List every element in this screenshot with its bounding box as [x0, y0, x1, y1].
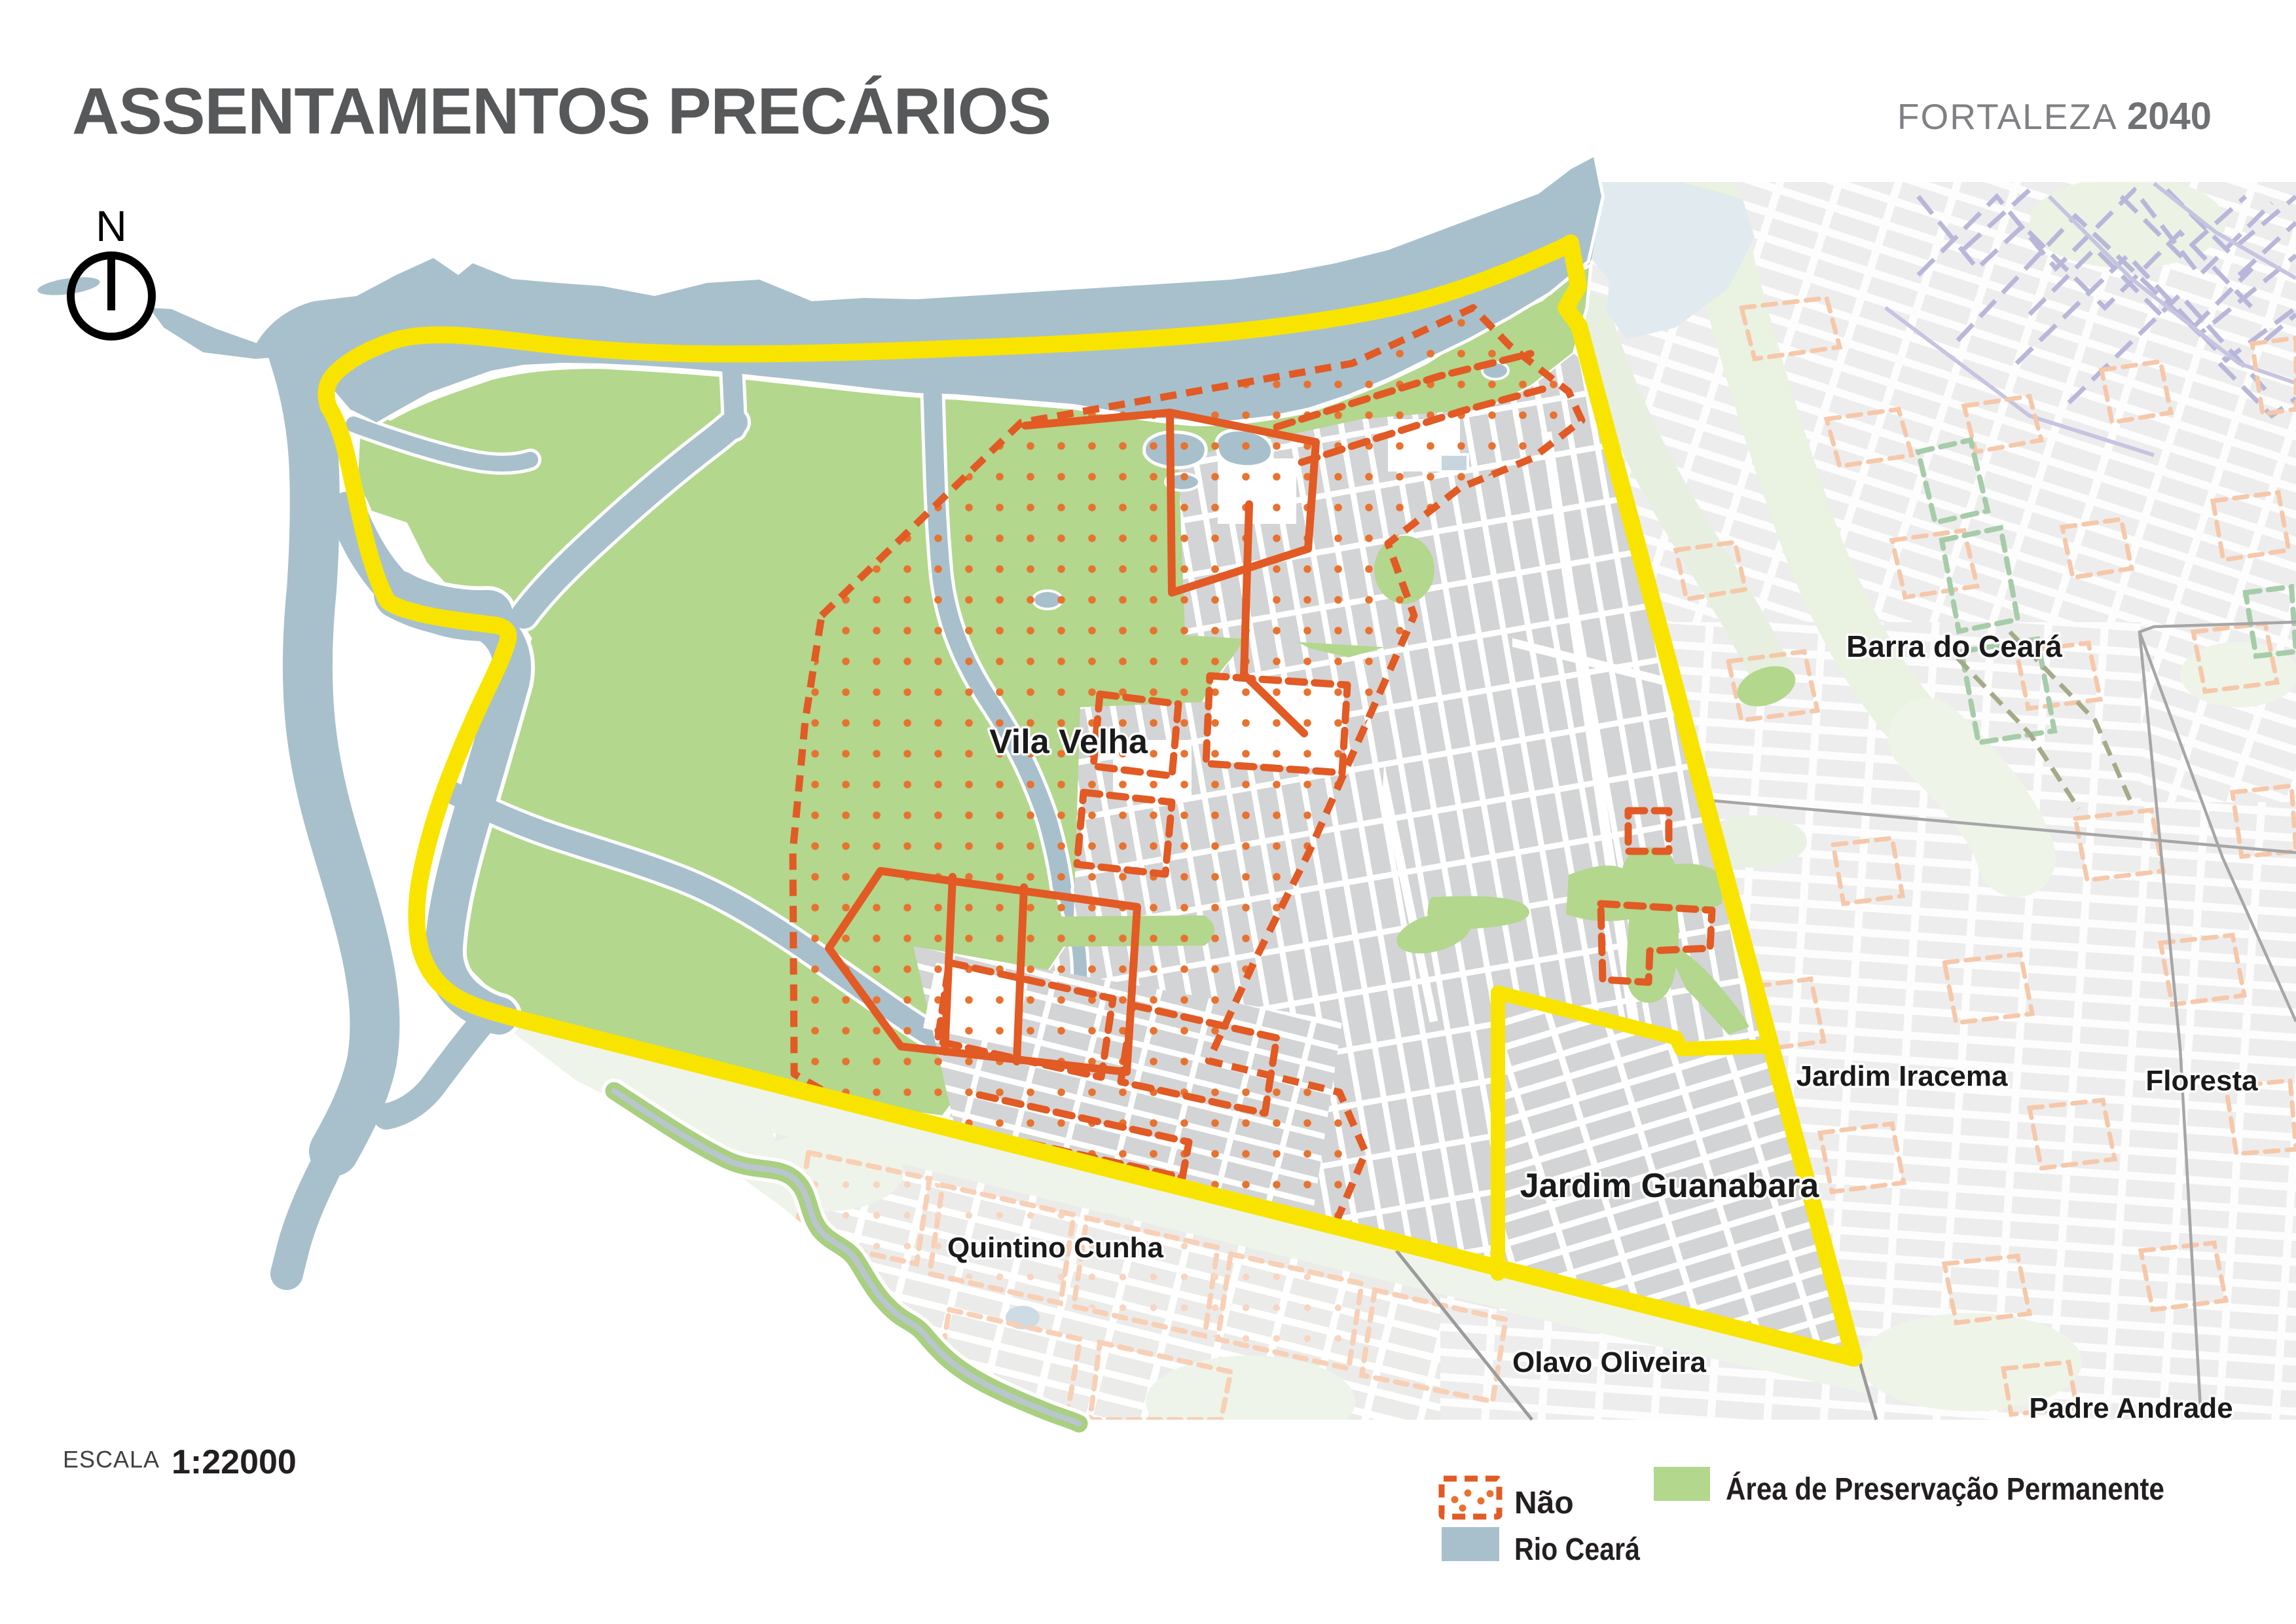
svg-text:ESCALA: ESCALA — [63, 1446, 160, 1473]
svg-text:Floresta: Floresta — [2145, 1065, 2258, 1097]
svg-text:1:22000: 1:22000 — [172, 1443, 297, 1481]
svg-text:Área de Preservação Permanente: Área de Preservação Permanente — [1726, 1471, 2164, 1507]
svg-text:Quintino Cunha: Quintino Cunha — [947, 1232, 1163, 1264]
svg-text:ASSENTAMENTOS PRECÁRIOS: ASSENTAMENTOS PRECÁRIOS — [72, 75, 1051, 148]
svg-text:Vila Velha: Vila Velha — [989, 723, 1148, 761]
svg-text:Padre Andrade: Padre Andrade — [2029, 1392, 2232, 1424]
svg-text:Não: Não — [1514, 1486, 1574, 1521]
svg-text:Jardim Iracema: Jardim Iracema — [1796, 1060, 2008, 1092]
svg-text:Rio Ceará: Rio Ceará — [1514, 1532, 1640, 1567]
svg-text:N: N — [96, 202, 127, 250]
svg-text:Barra do Ceará: Barra do Ceará — [1846, 629, 2062, 663]
svg-text:Jardim Guanabara: Jardim Guanabara — [1520, 1167, 1820, 1205]
svg-text:FORTALEZA 2040: FORTALEZA 2040 — [1897, 95, 2212, 138]
svg-text:Olavo Oliveira: Olavo Oliveira — [1512, 1346, 1706, 1378]
